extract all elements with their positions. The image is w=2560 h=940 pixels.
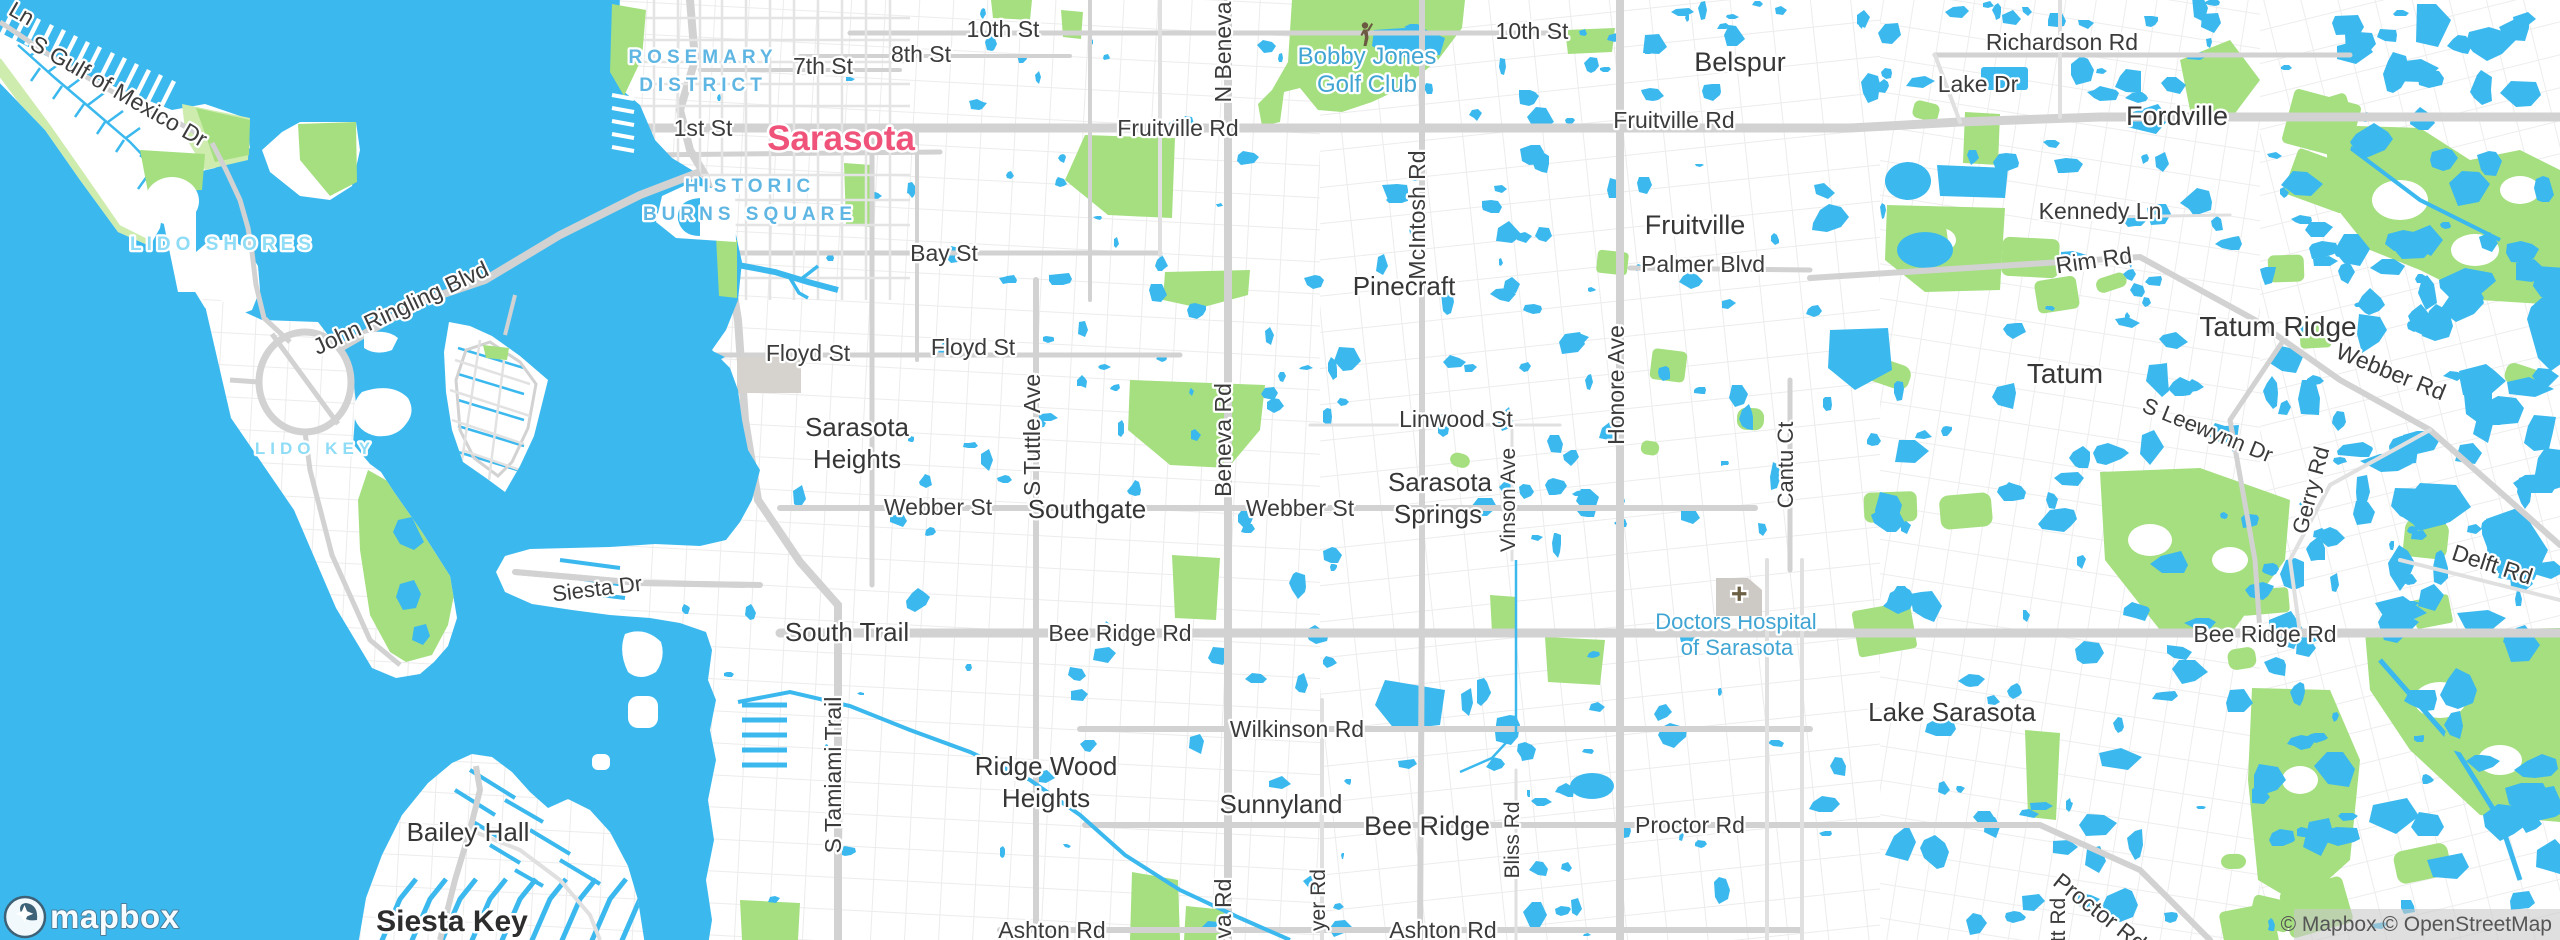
svg-text:Palmer Blvd: Palmer Blvd: [1641, 251, 1765, 277]
svg-text:Fordville: Fordville: [2126, 101, 2228, 131]
svg-text:McIntosh Rd: McIntosh Rd: [1404, 150, 1430, 279]
svg-text:of Sarasota: of Sarasota: [1681, 635, 1794, 660]
svg-text:Siesta Key: Siesta Key: [376, 905, 528, 938]
svg-text:Bee Ridge: Bee Ridge: [1364, 811, 1490, 841]
svg-text:DISTRICT: DISTRICT: [639, 75, 767, 96]
svg-text:1st St: 1st St: [674, 115, 733, 141]
svg-text:Sarasota: Sarasota: [805, 412, 910, 442]
svg-text:Bobby Jones: Bobby Jones: [1298, 43, 1437, 70]
svg-text:Lake Sarasota: Lake Sarasota: [1868, 697, 2036, 727]
svg-text:Vinson Ave: Vinson Ave: [1497, 448, 1520, 552]
svg-text:Wilkinson Rd: Wilkinson Rd: [1230, 716, 1364, 742]
svg-text:BURNS SQUARE: BURNS SQUARE: [643, 204, 857, 225]
svg-text:Sarasota: Sarasota: [767, 119, 915, 158]
svg-text:Bee Ridge Rd: Bee Ridge Rd: [2193, 621, 2336, 647]
svg-text:ROSEMARY: ROSEMARY: [628, 47, 777, 68]
svg-text:Tatum Ridge: Tatum Ridge: [2199, 311, 2356, 342]
svg-text:LIDO KEY: LIDO KEY: [255, 439, 375, 458]
svg-text:Linwood St: Linwood St: [1399, 406, 1513, 432]
svg-text:Golf Club: Golf Club: [1317, 71, 1417, 98]
svg-text:Bee Ridge Rd: Bee Ridge Rd: [1048, 620, 1191, 646]
svg-text:LIDO SHORES: LIDO SHORES: [130, 234, 316, 255]
svg-text:Belspur: Belspur: [1694, 47, 1786, 77]
svg-text:Kennedy Ln: Kennedy Ln: [2039, 198, 2162, 224]
svg-text:10th St: 10th St: [967, 16, 1040, 42]
svg-text:tt Rd: tt Rd: [2047, 898, 2070, 940]
svg-text:Heights: Heights: [1002, 783, 1090, 813]
svg-text:N Beneva: N Beneva: [1210, 1, 1236, 102]
svg-text:Cantu Ct: Cantu Ct: [1773, 422, 1798, 509]
svg-text:Fruitville Rd: Fruitville Rd: [1613, 107, 1734, 133]
svg-text:eva Rd: eva Rd: [1210, 879, 1236, 940]
svg-text:Beneva Rd: Beneva Rd: [1210, 383, 1236, 497]
svg-text:yer Rd: yer Rd: [1307, 869, 1330, 931]
svg-text:Ridge Wood: Ridge Wood: [975, 751, 1118, 781]
svg-text:Honore Ave: Honore Ave: [1603, 325, 1629, 445]
svg-text:Ashton Rd: Ashton Rd: [1389, 917, 1496, 940]
svg-text:Ashton Rd: Ashton Rd: [998, 917, 1105, 940]
svg-text:Bliss Rd: Bliss Rd: [1501, 801, 1524, 878]
svg-text:Heights: Heights: [813, 444, 901, 474]
svg-text:S Tamiami Trail: S Tamiami Trail: [820, 697, 846, 854]
svg-text:Floyd St: Floyd St: [766, 340, 851, 366]
svg-text:7th St: 7th St: [793, 53, 854, 79]
svg-text:Southgate: Southgate: [1028, 494, 1147, 524]
svg-text:mapbox: mapbox: [50, 898, 180, 935]
svg-text:Proctor Rd: Proctor Rd: [1635, 812, 1745, 838]
svg-text:South Trail: South Trail: [785, 617, 909, 647]
svg-text:8th St: 8th St: [891, 41, 952, 67]
svg-text:HISTORIC: HISTORIC: [685, 176, 815, 197]
svg-text:Floyd St: Floyd St: [931, 334, 1016, 360]
svg-text:Lake Dr: Lake Dr: [1938, 71, 2019, 97]
svg-text:Sarasota: Sarasota: [1388, 467, 1493, 497]
svg-text:Webber St: Webber St: [884, 494, 993, 520]
svg-text:Richardson Rd: Richardson Rd: [1986, 29, 2138, 55]
svg-text:Bay St: Bay St: [910, 240, 978, 266]
svg-text:Sunnyland: Sunnyland: [1220, 789, 1343, 819]
svg-text:S Tuttle Ave: S Tuttle Ave: [1019, 374, 1045, 496]
svg-text:Fruitville: Fruitville: [1645, 210, 1746, 240]
svg-text:Fruitville Rd: Fruitville Rd: [1117, 115, 1238, 141]
svg-text:© Mapbox © OpenStreetMap: © Mapbox © OpenStreetMap: [2281, 913, 2552, 936]
svg-text:10th St: 10th St: [1496, 18, 1569, 44]
svg-text:Webber St: Webber St: [1246, 495, 1355, 521]
svg-text:Pinecraft: Pinecraft: [1353, 271, 1456, 301]
svg-text:Tatum: Tatum: [2027, 358, 2103, 389]
svg-text:Springs: Springs: [1394, 499, 1482, 529]
svg-text:Bailey Hall: Bailey Hall: [407, 817, 530, 847]
